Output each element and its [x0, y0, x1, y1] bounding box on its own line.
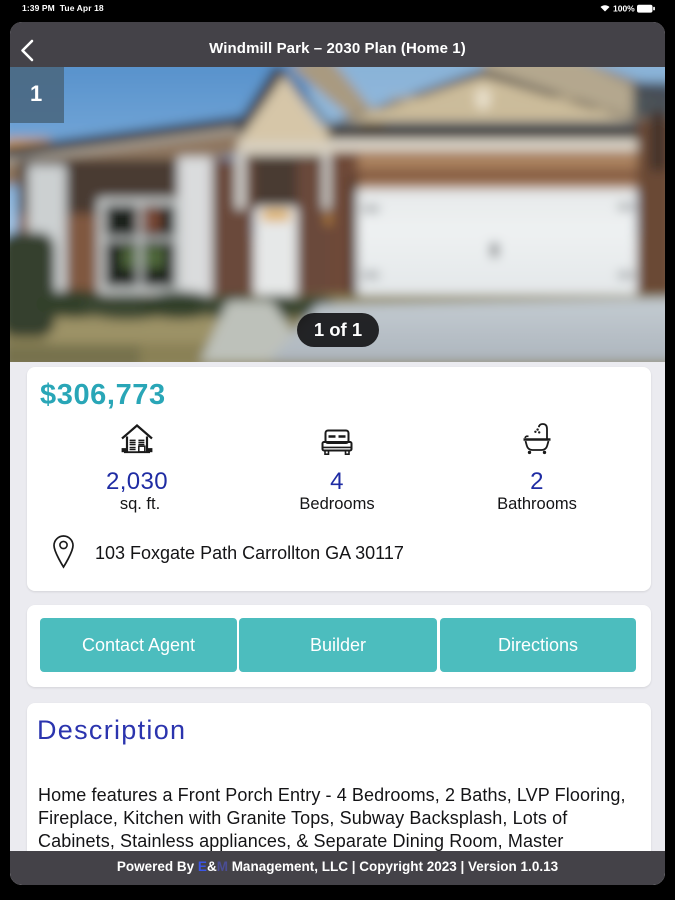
svg-text:100%: 100% — [613, 4, 635, 14]
